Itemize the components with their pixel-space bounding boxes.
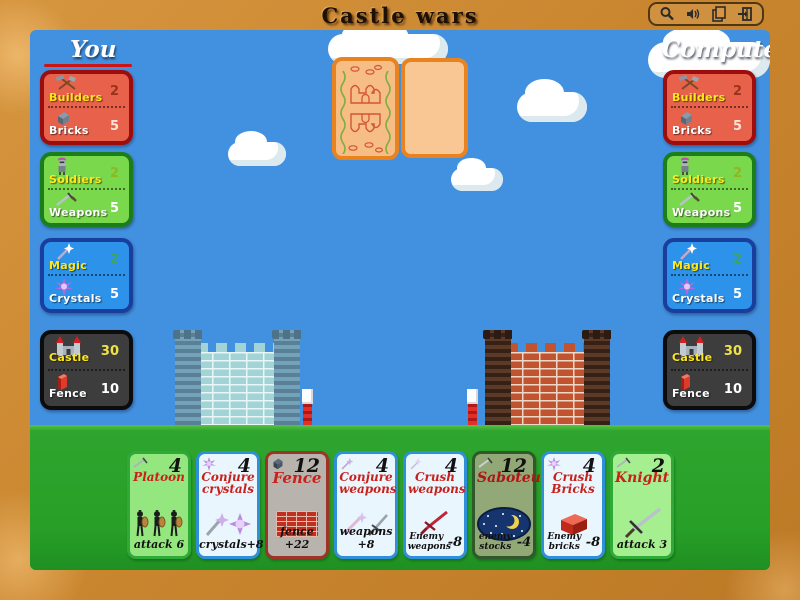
- castle-value: 30: [724, 344, 742, 359]
- cloud: [228, 142, 286, 166]
- game-board: You Computer 2 Builders 5 Bricks: [30, 30, 770, 570]
- player-you-name: You: [70, 36, 116, 63]
- castle-wall: [195, 352, 280, 425]
- sword-art: [620, 507, 664, 541]
- magic-label: Magic: [672, 259, 710, 272]
- wand-crystal-art: [203, 509, 253, 539]
- castle-label: Castle: [49, 351, 89, 364]
- builders-label: Builders: [672, 91, 725, 104]
- wand-icon: [340, 457, 354, 471]
- panel-you-builders-bricks: 2 Builders 5 Bricks: [40, 70, 133, 145]
- card-cost: 12: [501, 455, 527, 477]
- panel-divider: [48, 274, 125, 276]
- crystals-value: 5: [110, 287, 119, 302]
- castle-tower: [584, 330, 610, 425]
- speaker-icon[interactable]: [685, 6, 701, 22]
- builders-icon: [678, 75, 702, 92]
- weapons-icon: [55, 192, 77, 207]
- weapons-label: Weapons: [672, 206, 731, 219]
- crystal-icon: [547, 457, 561, 471]
- panel-computer-builders-bricks: 2 Builders 5 Bricks: [663, 70, 756, 145]
- computer-fence: [467, 389, 479, 425]
- card-cost: 12: [294, 455, 320, 477]
- soldiers-label: Soldiers: [672, 173, 725, 186]
- panel-divider: [671, 274, 748, 276]
- card-effect: weapons +8: [337, 525, 395, 551]
- magic-value: 2: [733, 252, 742, 267]
- card-effect: enemy stocks: [477, 533, 514, 552]
- card-cost: 4: [238, 455, 251, 477]
- card-effect: attack 3: [613, 538, 671, 551]
- card-effect-value: -8: [586, 535, 600, 550]
- builders-label: Builders: [49, 91, 102, 104]
- hand-card-conjure-weapons[interactable]: 4 Conjure weapons weapons +8: [334, 451, 398, 559]
- builders-value: 2: [110, 84, 119, 99]
- soldiers-value: 2: [733, 166, 742, 181]
- panel-divider: [48, 188, 125, 190]
- sword-icon: [133, 457, 149, 469]
- soldiers-label: Soldiers: [49, 173, 102, 186]
- fence-value: 10: [724, 382, 742, 397]
- card-cost: 2: [652, 455, 665, 477]
- card-effect: Enemy bricks: [546, 533, 583, 552]
- panel-you-soldiers-weapons: 2 Soldiers 5 Weapons: [40, 152, 133, 227]
- panel-divider: [48, 106, 125, 108]
- castle-tower: [485, 330, 511, 425]
- card-cost: 4: [376, 455, 389, 477]
- soldiers-art: [133, 510, 185, 538]
- bricks-label: Bricks: [49, 124, 89, 137]
- sparkle-wand-icon: [409, 457, 423, 471]
- castle-label: Castle: [672, 351, 712, 364]
- hand-card-saboteur[interactable]: 12 Saboteur enemy stocks -4: [472, 451, 536, 559]
- hand-card-crush-weapons[interactable]: 4 Crush weapons Enemy weapons -8: [403, 451, 467, 559]
- magnifier-icon[interactable]: [659, 6, 675, 22]
- deck-card[interactable]: [332, 57, 399, 160]
- panel-you-magic-crystals: 2 Magic 5 Crystals: [40, 238, 133, 313]
- weapons-value: 5: [110, 201, 119, 216]
- weapons-value: 5: [733, 201, 742, 216]
- panel-divider: [671, 369, 748, 371]
- exit-door-icon[interactable]: [737, 6, 753, 22]
- weapons-label: Weapons: [49, 206, 108, 219]
- your-castle: [175, 330, 300, 425]
- hand-card-platoon[interactable]: 4 Platoon attack 6: [127, 451, 191, 559]
- card-back-pattern: [338, 63, 393, 154]
- turn-indicator-underline: [44, 64, 132, 67]
- castle-value: 30: [101, 344, 119, 359]
- bricks-label: Bricks: [672, 124, 712, 137]
- your-fence: [302, 389, 314, 425]
- bricks-value: 5: [110, 119, 119, 134]
- card-effect: attack 6: [130, 538, 188, 551]
- card-cost: 4: [169, 455, 182, 477]
- castle-wall: [505, 352, 590, 425]
- hand-card-crush-bricks[interactable]: 4 Crush Bricks Enemy bricks -8: [541, 451, 605, 559]
- played-card-slot[interactable]: [401, 58, 468, 158]
- sword-icon: [616, 457, 632, 469]
- panel-you-castle-fence: 30 Castle 10 Fence: [40, 330, 133, 410]
- computer-castle: [485, 330, 610, 425]
- fence-label: Fence: [49, 387, 87, 400]
- panel-divider: [671, 106, 748, 108]
- panel-computer-soldiers-weapons: 2 Soldiers 5 Weapons: [663, 152, 756, 227]
- weapons-icon: [678, 192, 700, 207]
- hand-card-knight[interactable]: 2 Knight attack 3: [610, 451, 674, 559]
- card-effect: fence +22: [268, 525, 326, 551]
- card-cost: 4: [583, 455, 596, 477]
- fence-label: Fence: [672, 387, 710, 400]
- card-effect-value: -8: [448, 535, 462, 550]
- builders-icon: [55, 75, 79, 92]
- bricks-value: 5: [733, 119, 742, 134]
- magic-label: Magic: [49, 259, 87, 272]
- cloud: [517, 92, 587, 122]
- soldiers-value: 2: [110, 166, 119, 181]
- window-toolbar: [648, 2, 764, 26]
- card-effect: crystals+8: [199, 538, 257, 551]
- panel-computer-magic-crystals: 2 Magic 5 Crystals: [663, 238, 756, 313]
- card-effect: Enemy weapons: [408, 533, 445, 552]
- cloud: [451, 168, 503, 191]
- player-computer-name: Computer: [662, 36, 770, 63]
- hand-card-fence[interactable]: 12 Fence fence +22: [265, 451, 329, 559]
- card-effect-value: -4: [517, 535, 531, 550]
- pages-icon[interactable]: [711, 6, 727, 22]
- sword-icon: [478, 457, 494, 469]
- brick-icon: [271, 457, 285, 470]
- castle-tower: [274, 330, 300, 425]
- hand-card-conjure-crystals[interactable]: 4 Conjure crystals crystals+8: [196, 451, 260, 559]
- card-cost: 4: [445, 455, 458, 477]
- magic-value: 2: [110, 252, 119, 267]
- panel-computer-castle-fence: 30 Castle 10 Fence: [663, 330, 756, 410]
- panel-divider: [671, 188, 748, 190]
- crystals-label: Crystals: [672, 292, 725, 305]
- builders-value: 2: [733, 84, 742, 99]
- crystals-label: Crystals: [49, 292, 102, 305]
- fence-value: 10: [101, 382, 119, 397]
- player-hand: 4 Platoon attack 6 4 Conjure crystals: [127, 451, 674, 559]
- crystal-icon: [202, 457, 216, 471]
- crystals-value: 5: [733, 287, 742, 302]
- castle-tower: [175, 330, 201, 425]
- panel-divider: [48, 369, 125, 371]
